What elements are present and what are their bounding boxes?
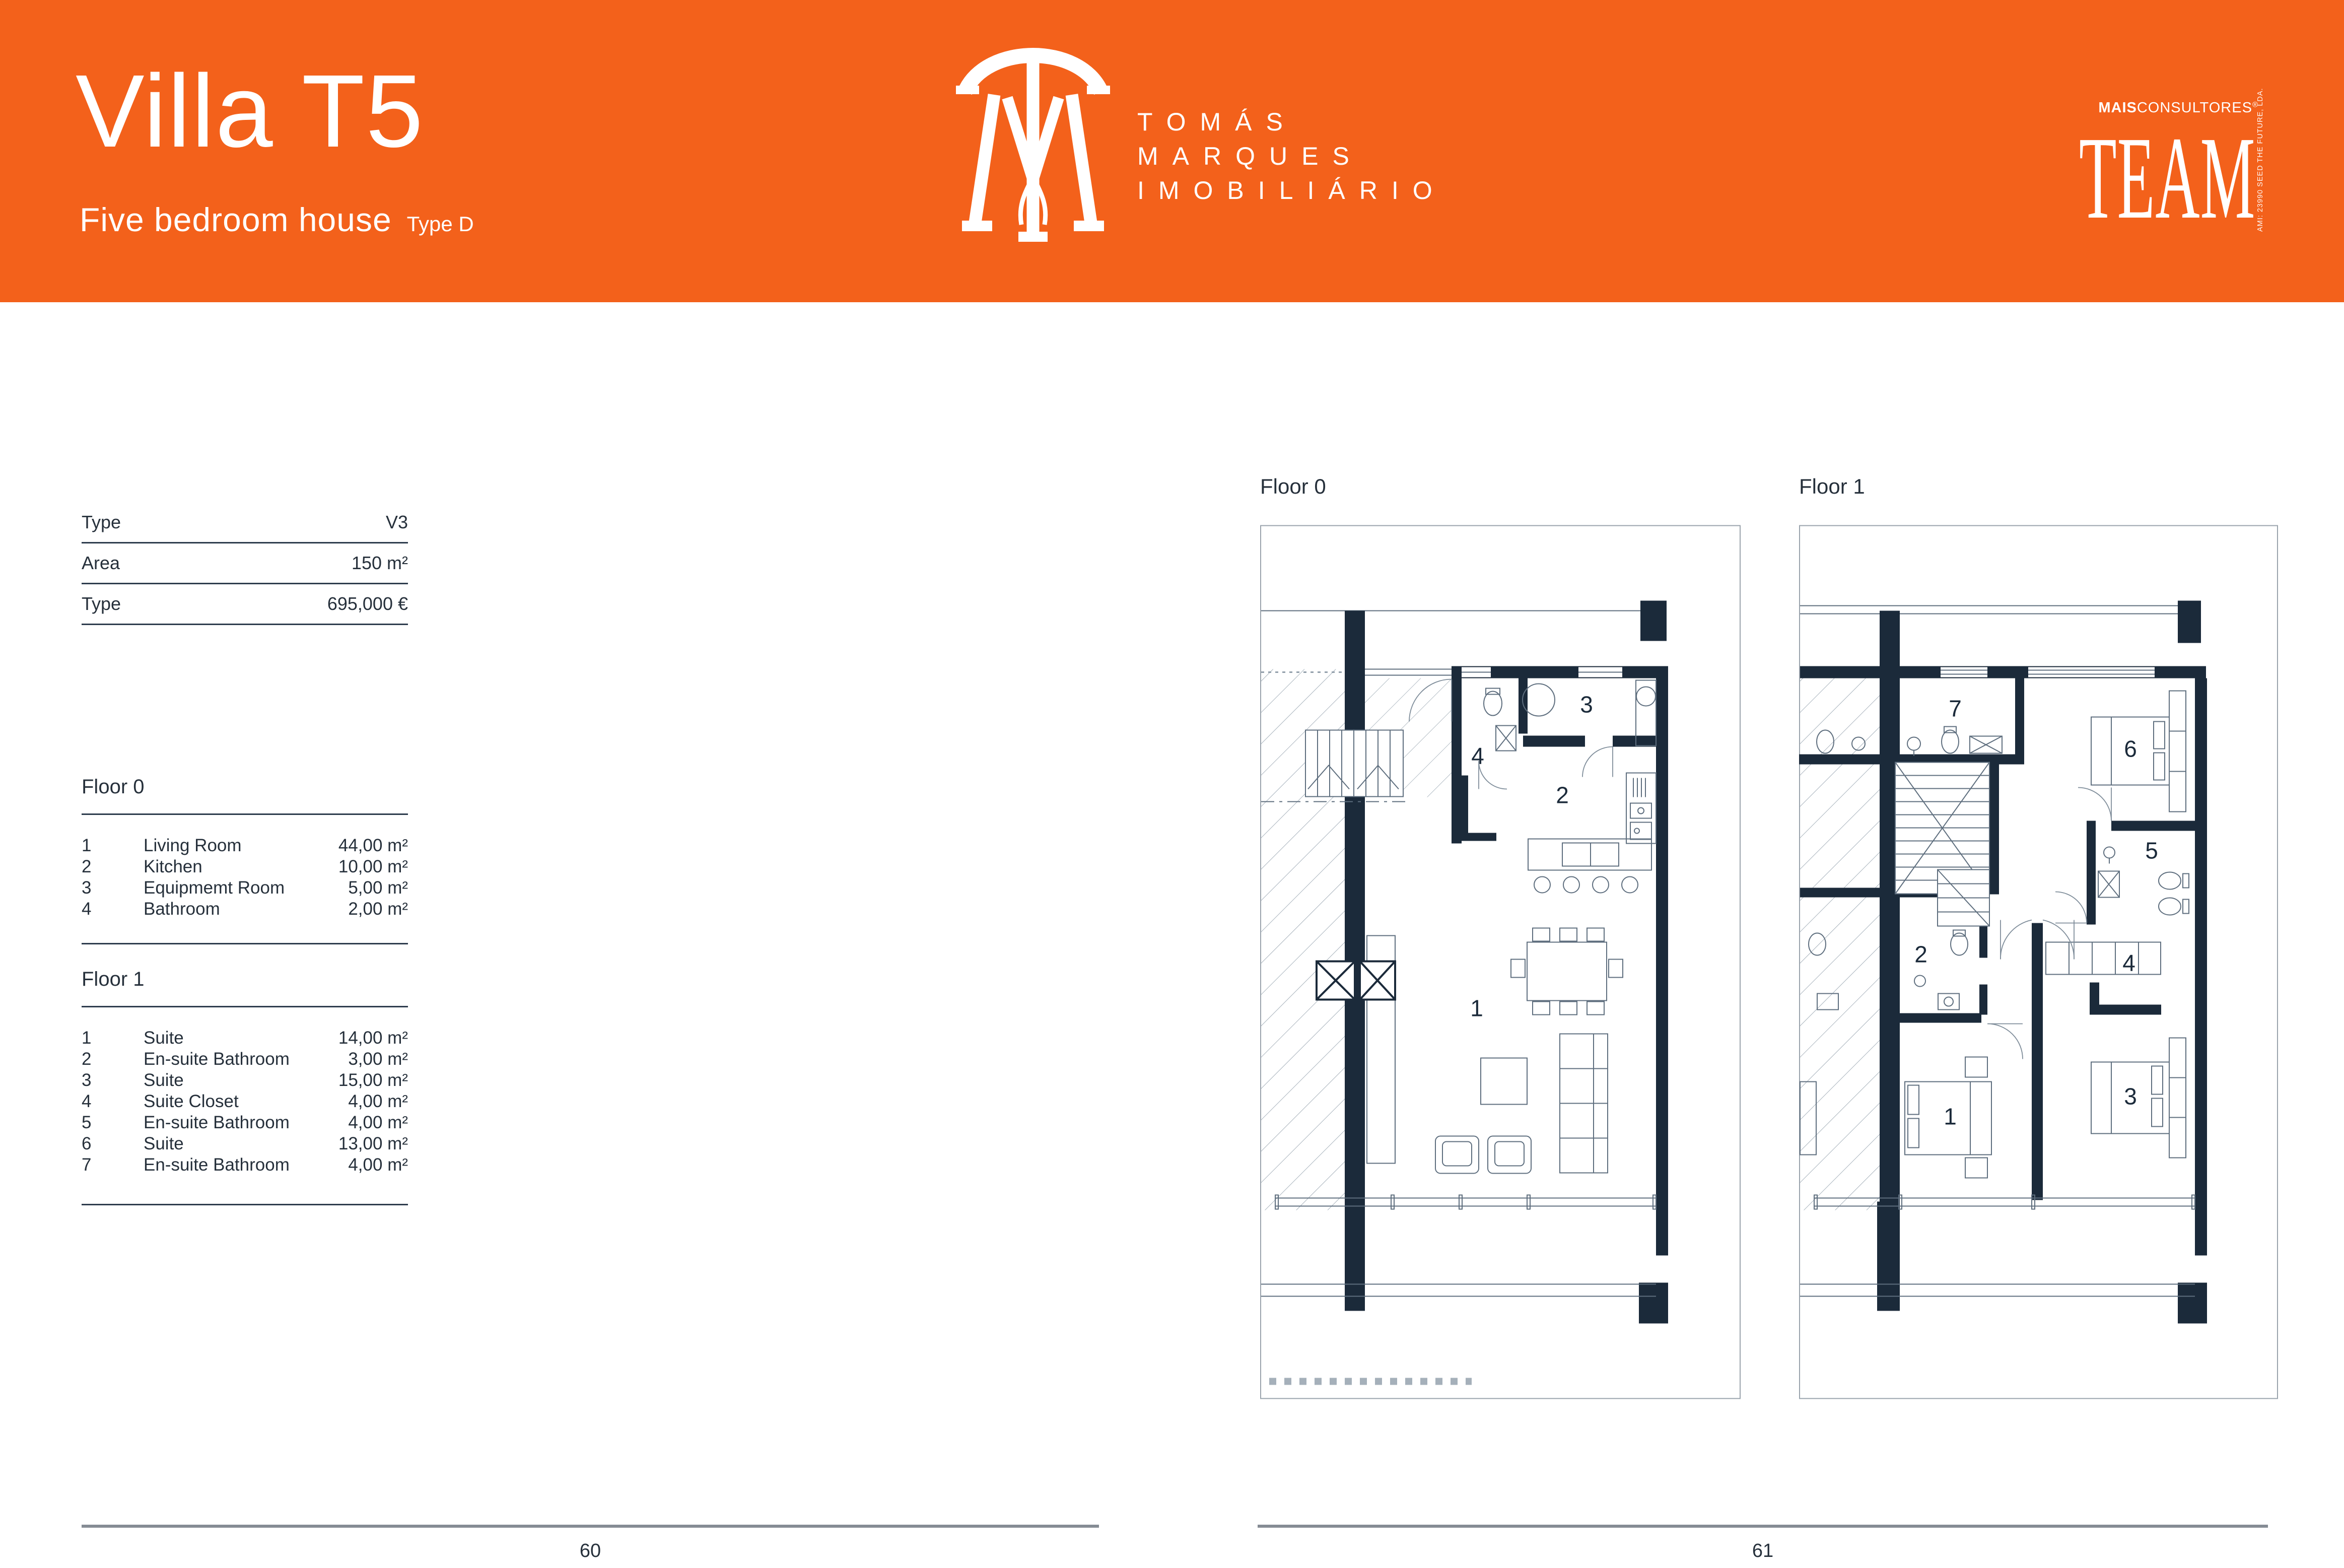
floor1-room-list: 1Suite14,00 m²2En-suite Bathroom3,00 m²3… (82, 1028, 408, 1205)
room-row: 7En-suite Bathroom4,00 m² (82, 1154, 408, 1176)
room-name: Equipmemt Room (144, 877, 348, 899)
plan-room-number: 2 (1556, 782, 1569, 808)
plan-room-number: 5 (2145, 838, 2158, 864)
info-label: Type (82, 593, 121, 615)
info-label: Area (82, 553, 120, 574)
room-number: 3 (82, 877, 144, 899)
page-number-left: 60 (82, 1540, 1099, 1562)
windows (1941, 667, 2155, 677)
room-row: 5En-suite Bathroom4,00 m² (82, 1112, 408, 1133)
room-number: 6 (82, 1133, 144, 1154)
room-area: 15,00 m² (338, 1070, 408, 1091)
room-number: 1 (82, 835, 144, 856)
room-number: 4 (82, 1091, 144, 1112)
room-name: Suite (144, 1133, 338, 1154)
plan-room-number: 1 (1944, 1104, 1957, 1130)
floor0-plan-label: Floor 0 (1260, 474, 1326, 499)
floor0-plan-drawing: 1234 (1260, 524, 1741, 1400)
room-name: En-suite Bathroom (144, 1049, 348, 1070)
room-area: 4,00 m² (348, 1154, 408, 1176)
room-area: 2,00 m² (348, 899, 408, 920)
shaft-boxes (1317, 962, 1395, 1000)
room-row: 1Suite14,00 m² (82, 1028, 408, 1049)
brand-line-3: IMOBILIÁRIO (1137, 173, 1446, 208)
plan-room-number: 2 (1914, 941, 1927, 968)
room-number: 2 (82, 1049, 144, 1070)
room-name: Suite Closet (144, 1091, 348, 1112)
floor0-room-list-section: Floor 0 1Living Room44,00 m²2Kitchen10,0… (82, 776, 408, 944)
type-tag: Type D (407, 212, 474, 236)
partner-license-text: AMI: 23990 SEED THE FUTURE, LDA. (2256, 126, 2264, 232)
room-row: 3Suite15,00 m² (82, 1070, 408, 1091)
room-area: 10,00 m² (338, 856, 408, 877)
room-area: 44,00 m² (338, 835, 408, 856)
room-name: Suite (144, 1028, 338, 1049)
floor0-heading: Floor 0 (82, 776, 408, 815)
floor1-plan-label: Floor 1 (1799, 474, 1865, 499)
header-band: Villa T5 Five bedroom house Type D (0, 0, 2344, 302)
floor0-room-list: 1Living Room44,00 m²2Kitchen10,00 m²3Equ… (82, 835, 408, 944)
room-number: 5 (82, 1112, 144, 1133)
tm-monogram-icon (955, 28, 1111, 245)
room-name: Kitchen (144, 856, 338, 877)
page-subtitle: Five bedroom house (80, 200, 392, 239)
plan-room-number: 4 (1471, 743, 1484, 769)
room-name: En-suite Bathroom (144, 1154, 348, 1176)
info-row-type: Type V3 (82, 503, 408, 543)
info-row-price: Type 695,000 € (82, 584, 408, 625)
room-row: 3Equipmemt Room5,00 m² (82, 877, 408, 899)
footer-rule-left (82, 1525, 1099, 1528)
room-area: 14,00 m² (338, 1028, 408, 1049)
room-number: 3 (82, 1070, 144, 1091)
room-name: Suite (144, 1070, 338, 1091)
brand-line-1: TOMÁS (1137, 105, 1446, 139)
brand-logo: TOMÁS MARQUES IMOBILIÁRIO (955, 28, 1446, 245)
floor1-plan: 1234567 (1799, 524, 2278, 1400)
floor1-plan-drawing: 1234567 (1799, 524, 2278, 1400)
room-name: Living Room (144, 835, 338, 856)
room-row: 2Kitchen10,00 m² (82, 856, 408, 877)
room-area: 4,00 m² (348, 1091, 408, 1112)
plan-room-number: 1 (1470, 995, 1483, 1021)
plan-room-number: 6 (2124, 736, 2137, 762)
room-row: 2En-suite Bathroom3,00 m² (82, 1049, 408, 1070)
room-row: 6Suite13,00 m² (82, 1133, 408, 1154)
brochure-spread: Villa T5 Five bedroom house Type D (0, 0, 2344, 1568)
team-wordmark: TEAM (2079, 127, 2179, 228)
info-label: Type (82, 512, 121, 533)
plan-room-number: 3 (1580, 692, 1593, 718)
floor1-room-list-section: Floor 1 1Suite14,00 m²2En-suite Bathroom… (82, 968, 408, 1205)
room-area: 3,00 m² (348, 1049, 408, 1070)
room-number: 4 (82, 899, 144, 920)
page-title: Villa T5 (76, 59, 424, 163)
brand-name: TOMÁS MARQUES IMOBILIÁRIO (1137, 105, 1446, 245)
info-value: 150 m² (352, 553, 408, 574)
brand-line-2: MARQUES (1137, 139, 1446, 173)
room-row: 4Suite Closet4,00 m² (82, 1091, 408, 1112)
room-name: Bathroom (144, 899, 348, 920)
room-number: 1 (82, 1028, 144, 1049)
floor1-heading: Floor 1 (82, 968, 408, 1007)
info-value: 695,000 € (327, 593, 408, 615)
room-row: 1Living Room44,00 m² (82, 835, 408, 856)
neighbor-hatch-area (1800, 669, 1880, 1210)
footer-rule-right (1258, 1525, 2268, 1528)
room-area: 13,00 m² (338, 1133, 408, 1154)
room-number: 2 (82, 856, 144, 877)
room-number: 7 (82, 1154, 144, 1176)
subtitle-row: Five bedroom house Type D (80, 200, 474, 239)
floor0-plan: 1234 (1260, 524, 1741, 1400)
room-area: 4,00 m² (348, 1112, 408, 1133)
info-value: V3 (386, 512, 408, 533)
info-row-area: Area 150 m² (82, 543, 408, 584)
room-row: 4Bathroom2,00 m² (82, 899, 408, 920)
property-info-table: Type V3 Area 150 m² Type 695,000 € (82, 503, 408, 625)
room-area: 5,00 m² (348, 877, 408, 899)
plan-room-number: 7 (1949, 696, 1962, 722)
partner-logo: MAISCONSULTORES® TEAM AMI: 23990 SEED TH… (2079, 100, 2270, 228)
room-name: En-suite Bathroom (144, 1112, 348, 1133)
plan-room-number: 4 (2122, 950, 2135, 976)
plan-room-number: 3 (2124, 1083, 2137, 1110)
page-number-right: 61 (1258, 1540, 2268, 1562)
